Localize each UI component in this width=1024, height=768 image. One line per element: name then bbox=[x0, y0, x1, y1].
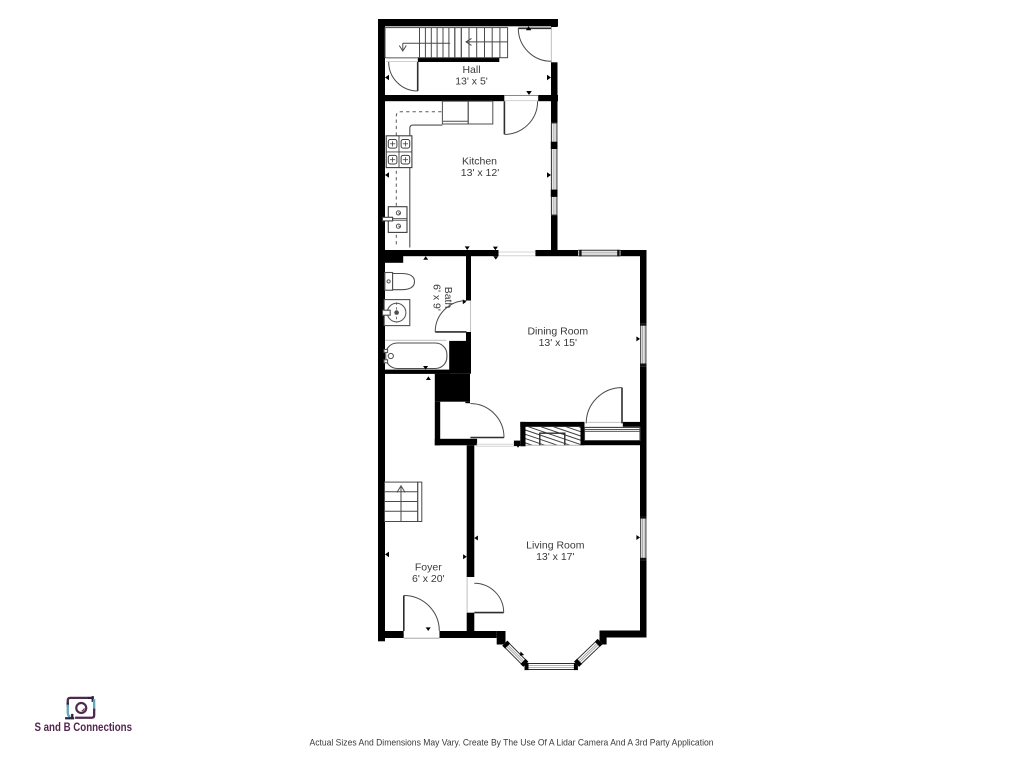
svg-text:13' x 5': 13' x 5' bbox=[455, 75, 488, 87]
svg-text:6' x 20': 6' x 20' bbox=[412, 573, 445, 585]
svg-text:6' x 9': 6' x 9' bbox=[431, 284, 443, 311]
svg-text:S and B Connections: S and B Connections bbox=[35, 722, 133, 734]
svg-text:Bath: Bath bbox=[442, 287, 454, 309]
svg-text:Dining Room: Dining Room bbox=[527, 326, 588, 338]
svg-text:13' x 17': 13' x 17' bbox=[536, 551, 574, 563]
svg-text:Actual Sizes And Dimensions Ma: Actual Sizes And Dimensions May Vary. Cr… bbox=[310, 738, 714, 748]
svg-text:Foyer: Foyer bbox=[415, 561, 442, 573]
svg-text:13' x 12': 13' x 12' bbox=[461, 167, 499, 179]
svg-text:13' x 15': 13' x 15' bbox=[539, 337, 577, 349]
svg-text:Living Room: Living Room bbox=[526, 539, 585, 551]
svg-text:Hall: Hall bbox=[462, 64, 480, 76]
svg-text:Kitchen: Kitchen bbox=[462, 156, 497, 168]
